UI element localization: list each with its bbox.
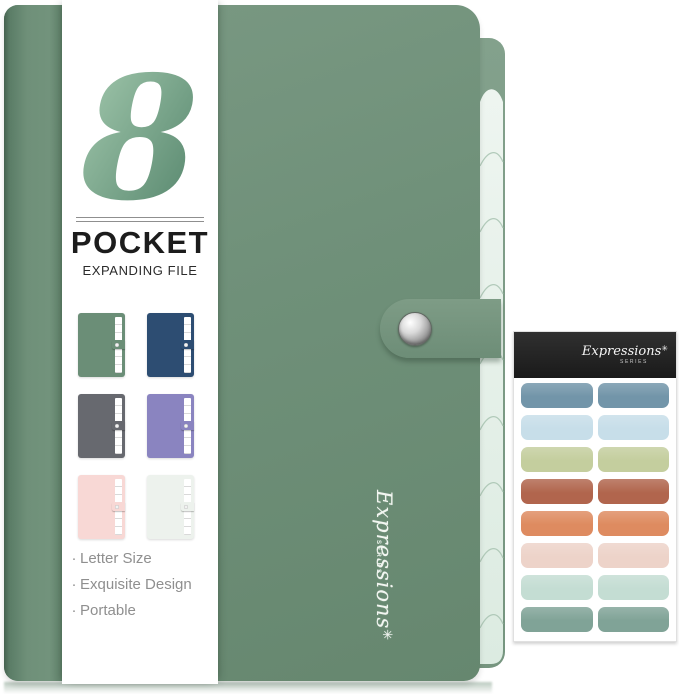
label-sticker-light-blue xyxy=(598,415,670,440)
label-sticker-terracotta xyxy=(521,479,593,504)
bullet-icon: · xyxy=(68,598,80,624)
swatch-sage-green xyxy=(78,313,125,377)
label-sticker-sage xyxy=(598,447,670,472)
mini-snap-icon xyxy=(115,505,119,509)
label-sticker-sheet: Expressions✳ SERIES xyxy=(513,331,677,642)
logo-8-glyph: 8 xyxy=(80,58,199,208)
snap-strap xyxy=(380,299,501,358)
swatch-navy-blue xyxy=(147,313,194,377)
label-sticker-mint xyxy=(521,575,593,600)
swatch-mint-white xyxy=(147,475,194,539)
label-sticker-orange xyxy=(598,511,670,536)
feature-item: ·Letter Size xyxy=(68,546,192,572)
swatch-blush-pink xyxy=(78,475,125,539)
feature-text: Letter Size xyxy=(80,550,152,567)
label-sticker-blush xyxy=(521,543,593,568)
mini-strap xyxy=(181,502,194,511)
label-sticker-steel-blue xyxy=(598,383,670,408)
mini-strap xyxy=(181,340,194,349)
bullet-icon: · xyxy=(68,572,80,598)
mini-strap xyxy=(112,421,125,430)
packaging-band: 8 POCKET EXPANDING FILE xyxy=(62,0,218,684)
sheet-brand-script: Expressions✳ xyxy=(514,345,668,358)
color-swatch-grid xyxy=(78,313,194,539)
label-sticker-sage xyxy=(521,447,593,472)
sticker-sheet-header: Expressions✳ SERIES xyxy=(514,332,676,378)
sheet-series-label: SERIES xyxy=(514,360,668,365)
product-photo-expanding-file: Expressions✳ SERIES 8 POCKET EXPANDING F… xyxy=(0,0,679,694)
mini-snap-icon xyxy=(184,505,188,509)
mini-snap-icon xyxy=(184,424,188,428)
mini-snap-icon xyxy=(115,424,119,428)
label-sticker-teal xyxy=(598,607,670,632)
feature-item: ·Exquisite Design xyxy=(68,572,192,598)
sheet-script-text: Expressions xyxy=(582,344,661,359)
swatch-slate-gray xyxy=(78,394,125,458)
star-icon: ✳ xyxy=(661,344,668,353)
mini-snap-icon xyxy=(115,343,119,347)
mini-strap xyxy=(112,502,125,511)
feature-text: Exquisite Design xyxy=(80,576,192,593)
mini-snap-icon xyxy=(184,343,188,347)
mini-strap xyxy=(181,421,194,430)
folder-spine-edge xyxy=(4,5,62,681)
folder-series-label: SERIES xyxy=(375,540,381,575)
label-sticker-mint xyxy=(598,575,670,600)
feature-list: ·Letter Size ·Exquisite Design ·Portable xyxy=(68,546,192,624)
double-rule-divider xyxy=(76,217,204,222)
bullet-icon: · xyxy=(68,546,80,572)
swatch-lavender-purple xyxy=(147,394,194,458)
label-sticker-light-blue xyxy=(521,415,593,440)
pocket-title: POCKET xyxy=(62,227,218,258)
label-sticker-teal xyxy=(521,607,593,632)
snap-button xyxy=(398,312,432,346)
feature-item: ·Portable xyxy=(68,598,192,624)
expanding-file-subtitle: EXPANDING FILE xyxy=(62,263,218,278)
label-sticker-orange xyxy=(521,511,593,536)
mini-strap xyxy=(112,340,125,349)
label-sticker-steel-blue xyxy=(521,383,593,408)
logo-number-8: 8 xyxy=(75,58,205,208)
star-icon: ✳ xyxy=(379,629,394,641)
sticker-grid xyxy=(521,383,669,632)
label-sticker-terracotta xyxy=(598,479,670,504)
label-sticker-blush xyxy=(598,543,670,568)
feature-text: Portable xyxy=(80,602,136,619)
